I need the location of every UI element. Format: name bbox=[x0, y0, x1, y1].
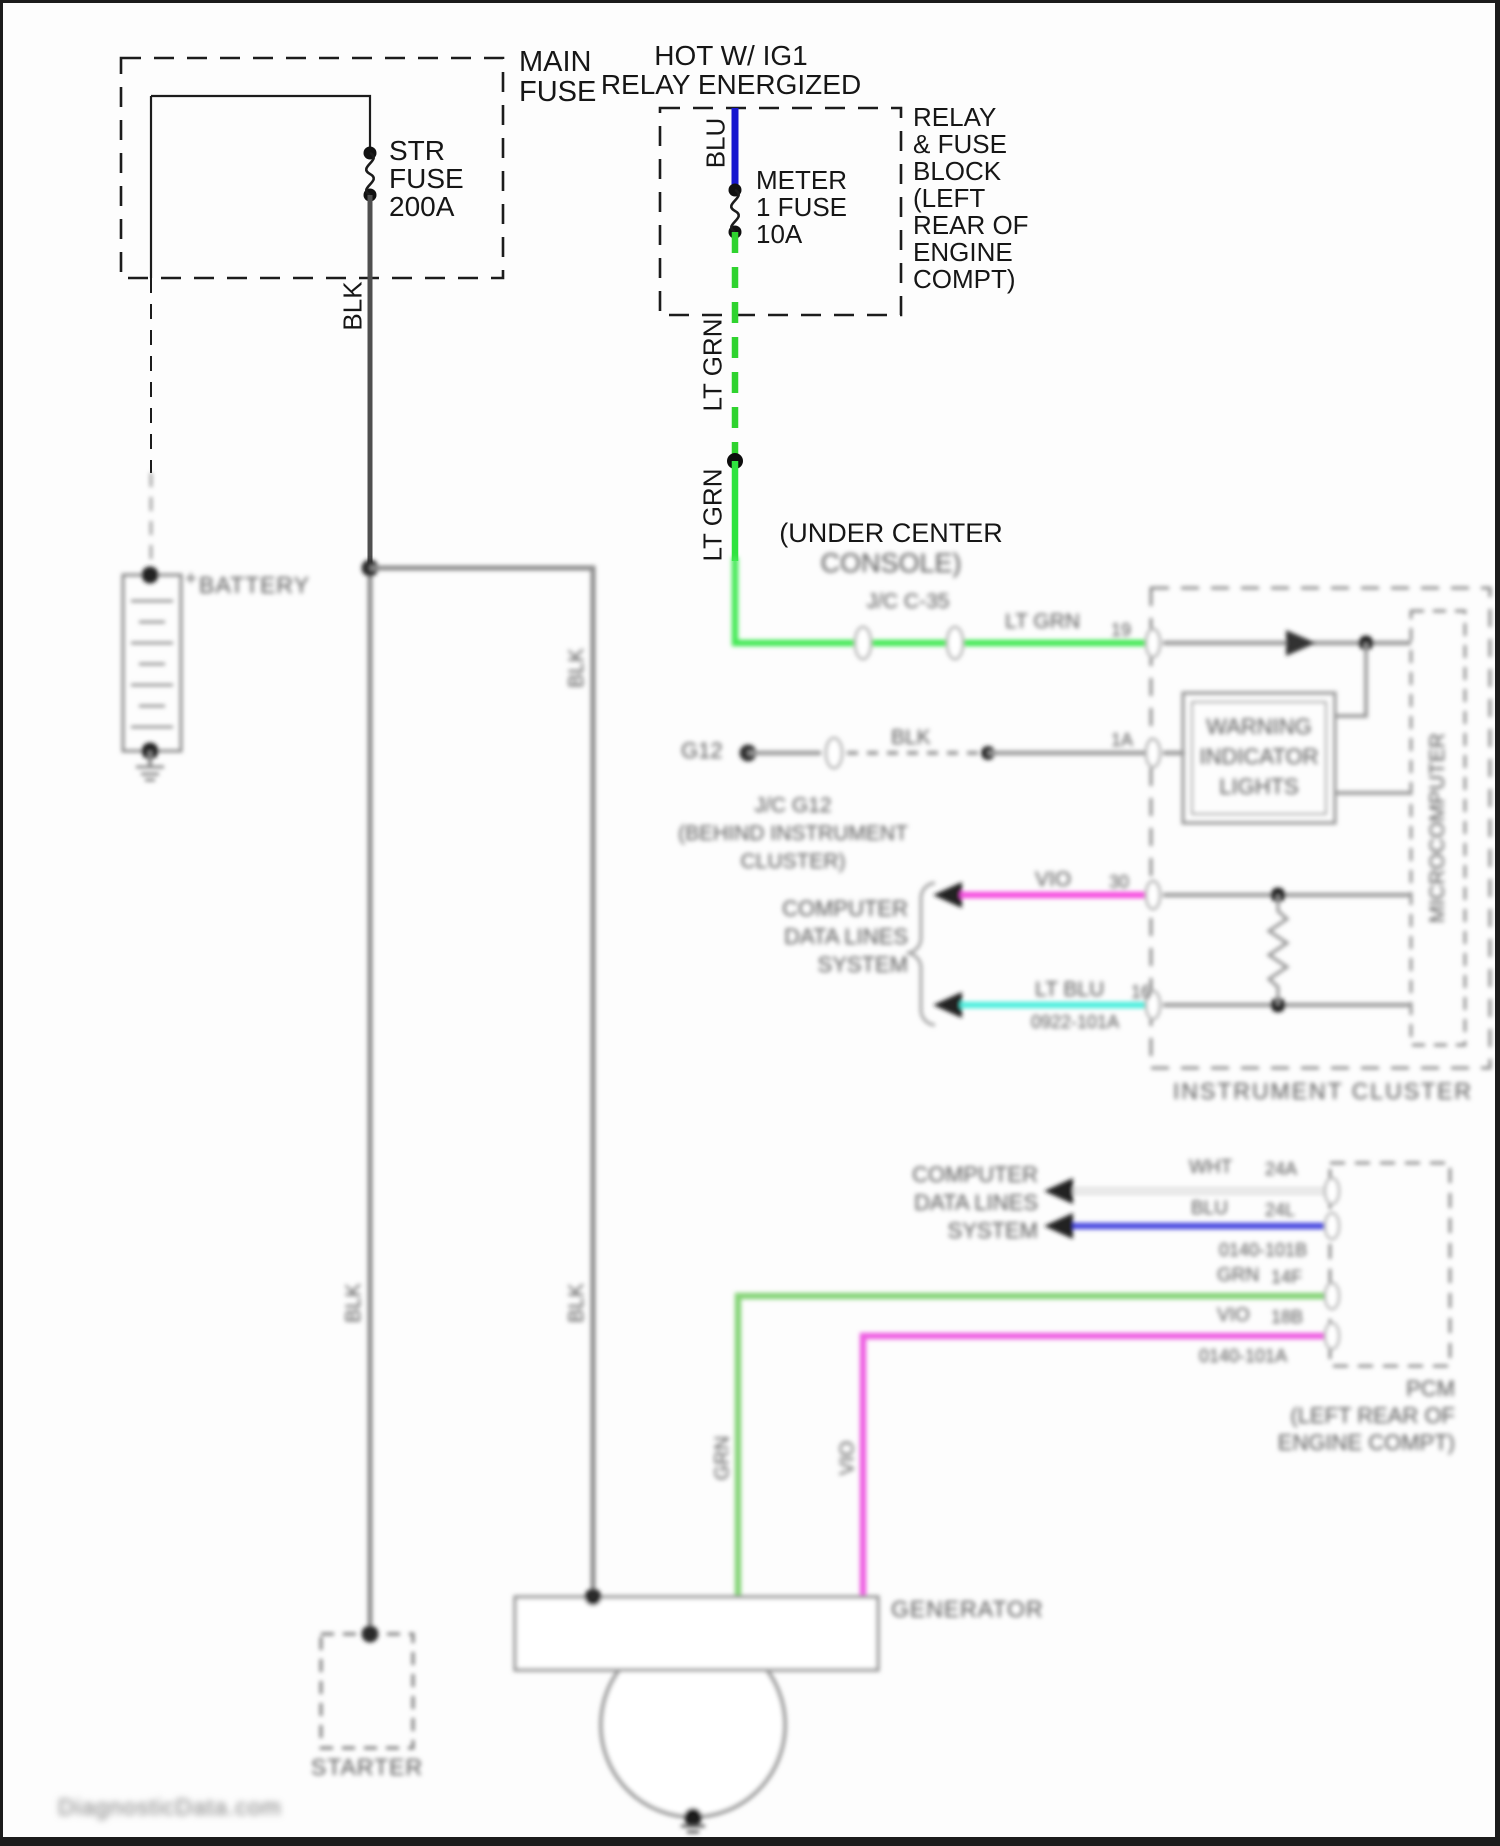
arrow-left-icon bbox=[933, 882, 962, 908]
computer-data-lines-1-line1: COMPUTER bbox=[743, 897, 908, 921]
jc-c35-label: J/C C-35 bbox=[867, 591, 950, 614]
battery-plus-sign: + bbox=[185, 569, 197, 591]
pcm-title-line2: (LEFT REAR OF bbox=[1243, 1404, 1455, 1428]
computer-data-lines-2-line2: DATA LINES bbox=[878, 1191, 1038, 1215]
vio-generator-wire-label: VIO bbox=[837, 1441, 860, 1475]
pcm-connector-code-a: 0140-101A bbox=[1199, 1347, 1287, 1366]
computer-data-lines-2-line3: SYSTEM bbox=[878, 1219, 1038, 1243]
cluster-resistor-symbol bbox=[1269, 895, 1287, 1005]
pcm-arrows bbox=[1044, 1178, 1073, 1239]
str-fuse-label-line1: STR bbox=[389, 136, 445, 166]
lt-grn-row-label: LT GRN bbox=[1005, 611, 1080, 634]
starter-label: STARTER bbox=[311, 1755, 423, 1780]
wht-pin: 24A bbox=[1265, 1160, 1297, 1179]
blk-main-lower-label: BLK bbox=[342, 1283, 366, 1323]
lt-blu-connector-code: 0922-101A bbox=[1031, 1013, 1119, 1032]
blk-row-label: BLK bbox=[891, 727, 931, 750]
wht-label: WHT bbox=[1189, 1158, 1232, 1179]
arrow-left-icon bbox=[1044, 1213, 1073, 1239]
under-center-console-line2: CONSOLE) bbox=[820, 549, 961, 578]
main-fuse-label-line1: MAIN bbox=[519, 47, 592, 78]
str-fuse-label-line3: 200A bbox=[389, 192, 454, 222]
pcm-box bbox=[1325, 1163, 1450, 1366]
lt-grn-pin: 19 bbox=[1111, 621, 1131, 640]
blk-row-pin: 1A bbox=[1111, 731, 1133, 750]
lt-blu-wire-cluster bbox=[960, 991, 1411, 1019]
blu-wire-label: BLU bbox=[701, 118, 732, 169]
computer-data-lines-1-line3: SYSTEM bbox=[743, 953, 908, 977]
meter-fuse-label-line3: 10A bbox=[756, 220, 802, 248]
battery-symbol bbox=[123, 473, 181, 780]
warning-lights-label-line1: WARNING bbox=[1206, 715, 1312, 739]
blk-branch-upper-label: BLK bbox=[565, 648, 589, 688]
jc-g12-label-line1: J/C G12 bbox=[754, 795, 831, 818]
computer-data-lines-brace bbox=[907, 882, 962, 1025]
grn-generator-wire-label: GRN bbox=[712, 1436, 735, 1480]
relay-block-label-line1: RELAY bbox=[913, 103, 996, 131]
vio-wire-pcm-to-generator bbox=[863, 1336, 1330, 1598]
wiring-diagram-page: MAIN FUSE STR FUSE 200A HOT W/ IG1 RELAY… bbox=[0, 0, 1500, 1846]
blk-wire-label: BLK bbox=[338, 281, 369, 330]
pcm-title-line3: ENGINE COMPT) bbox=[1243, 1431, 1455, 1455]
hot-header-line1: HOT W/ IG1 bbox=[654, 41, 808, 71]
arrow-left-icon bbox=[1044, 1178, 1073, 1204]
arrow-left-icon bbox=[933, 992, 962, 1018]
cluster-green-row bbox=[1146, 629, 1411, 716]
vio-row-pin: 30 bbox=[1109, 873, 1129, 892]
lt-blu-row-pin: 16 bbox=[1131, 983, 1151, 1002]
meter-fuse-symbol bbox=[729, 184, 742, 239]
grn-pcm-pin: 14F bbox=[1271, 1268, 1302, 1287]
meter-fuse-label-line1: METER bbox=[756, 166, 847, 194]
computer-data-lines-1-line2: DATA LINES bbox=[743, 925, 908, 949]
lt-grn-wire-dashed bbox=[727, 232, 743, 561]
generator-symbol bbox=[515, 1589, 878, 1833]
warning-lights-label-line2: INDICATOR bbox=[1200, 745, 1319, 769]
relay-block-label-line4: (LEFT bbox=[913, 184, 985, 212]
str-fuse-symbol bbox=[364, 147, 377, 202]
arrow-right-icon bbox=[1286, 630, 1316, 656]
grn-wire-pcm-to-generator bbox=[738, 1296, 1330, 1598]
blk-wire-main-blur bbox=[362, 560, 594, 1635]
watermark: DiagnosticData.com bbox=[58, 1795, 282, 1820]
vio-pcm-pin: 18B bbox=[1271, 1308, 1303, 1327]
instrument-cluster-label: INSTRUMENT CLUSTER bbox=[1173, 1079, 1473, 1104]
relay-block-label-line7: COMPT) bbox=[913, 265, 1016, 293]
pcm-title-line1: PCM bbox=[1243, 1377, 1455, 1401]
vio-pcm-label: VIO bbox=[1217, 1306, 1250, 1327]
blu-pcm-pin: 24L bbox=[1265, 1201, 1295, 1220]
meter-fuse-label-line2: 1 FUSE bbox=[756, 193, 847, 221]
jc-g12-label-line2: (BEHIND INSTRUMENT bbox=[678, 823, 908, 846]
under-center-console-line1: (UNDER CENTER bbox=[779, 519, 1003, 548]
str-fuse-label-line2: FUSE bbox=[389, 164, 464, 194]
hot-header-line2: RELAY ENERGIZED bbox=[601, 70, 861, 100]
vio-wire-cluster bbox=[960, 881, 1411, 909]
vio-row-label: VIO bbox=[1035, 869, 1071, 892]
blu-pcm-label: BLU bbox=[1191, 1199, 1228, 1220]
relay-block-label-line5: REAR OF bbox=[913, 211, 1029, 239]
microcomputer-label: MICROCOMPUTER bbox=[1426, 733, 1450, 923]
pcm-connector-code-b: 0140-101B bbox=[1219, 1241, 1307, 1260]
relay-block-label-line6: ENGINE bbox=[913, 238, 1013, 266]
grn-pcm-label: GRN bbox=[1217, 1266, 1259, 1287]
relay-block-label-line2: & FUSE bbox=[913, 130, 1007, 158]
lt-grn-upper-label: LT GRN bbox=[698, 319, 729, 412]
g12-label: G12 bbox=[681, 739, 723, 763]
main-fuse-box bbox=[121, 58, 503, 473]
jc-g12-label-line3: CLUSTER) bbox=[740, 851, 845, 874]
lt-grn-lower-label: LT GRN bbox=[698, 469, 729, 562]
generator-label: GENERATOR bbox=[891, 1597, 1044, 1622]
main-fuse-label-line2: FUSE bbox=[519, 77, 596, 108]
blk-branch-lower-label: BLK bbox=[565, 1283, 589, 1323]
computer-data-lines-2-line1: COMPUTER bbox=[878, 1163, 1038, 1187]
lt-blu-row-label: LT BLU bbox=[1035, 979, 1104, 1002]
starter-box bbox=[321, 1626, 413, 1749]
relay-block-label-line3: BLOCK bbox=[913, 157, 1001, 185]
battery-label: BATTERY bbox=[199, 573, 310, 598]
warning-lights-label-line3: LIGHTS bbox=[1219, 775, 1298, 799]
